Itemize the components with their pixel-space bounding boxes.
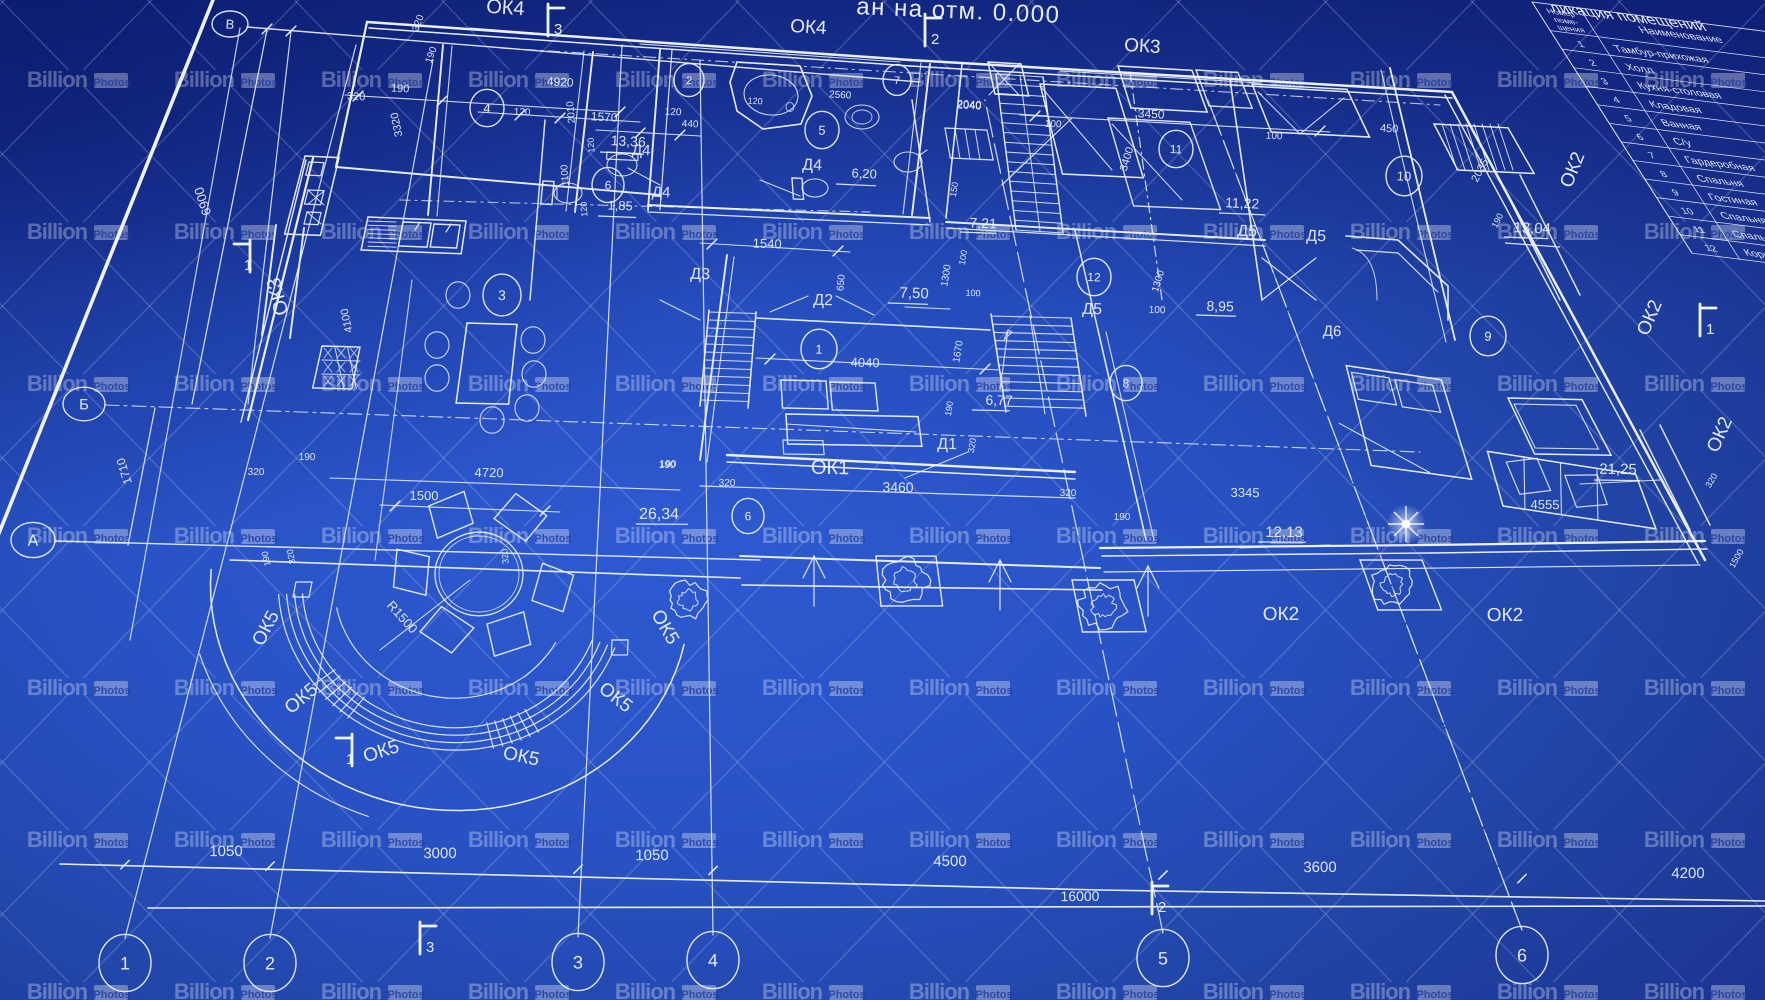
svg-text:Photos: Photos [1416,77,1453,89]
svg-text:Photos: Photos [93,229,130,241]
svg-text:Billion: Billion [468,371,529,396]
svg-text:Photos: Photos [534,533,571,545]
svg-text:Billion: Billion [468,219,529,244]
svg-text:Photos: Photos [1710,989,1747,1000]
svg-text:1: 1 [815,342,823,357]
svg-text:2: 2 [265,953,275,973]
svg-text:Billion: Billion [174,979,235,1000]
svg-text:Billion: Billion [27,979,88,1000]
svg-text:5: 5 [1158,948,1168,968]
svg-text:Billion: Billion [615,979,676,1000]
svg-text:7: 7 [894,75,901,87]
svg-text:Photos: Photos [681,989,718,1000]
svg-text:6,77: 6,77 [985,392,1013,409]
svg-text:Photos: Photos [1563,837,1600,849]
svg-text:Photos: Photos [387,381,424,393]
svg-text:Billion: Billion [615,219,676,244]
svg-text:12: 12 [1087,270,1101,284]
svg-text:Photos: Photos [828,77,865,89]
svg-text:Photos: Photos [93,685,130,697]
svg-text:Photos: Photos [93,837,130,849]
svg-text:Photos: Photos [1416,381,1453,393]
svg-text:8,95: 8,95 [1206,298,1234,315]
svg-text:Billion: Billion [27,675,88,700]
svg-text:Billion: Billion [1644,827,1705,852]
svg-text:3000: 3000 [423,845,456,862]
svg-text:100: 100 [965,288,980,298]
svg-text:Д4: Д4 [652,184,671,202]
svg-text:Photos: Photos [1269,837,1306,849]
svg-text:Billion: Billion [1056,523,1117,548]
svg-text:2010: 2010 [565,100,578,123]
svg-text:Д3: Д3 [690,266,710,284]
svg-text:3: 3 [554,21,562,38]
svg-text:В: В [225,16,235,32]
svg-text:Photos: Photos [1269,685,1306,697]
svg-text:Billion: Billion [321,523,382,548]
svg-text:Billion: Billion [321,827,382,852]
svg-text:1: 1 [1706,321,1714,338]
svg-text:120: 120 [747,96,763,107]
svg-text:16000: 16000 [1060,888,1099,904]
svg-text:100: 100 [1266,131,1284,143]
svg-text:Photos: Photos [1122,989,1159,1000]
svg-text:11,22: 11,22 [1225,194,1260,211]
svg-text:ОК2: ОК2 [1263,604,1299,625]
svg-text:4920: 4920 [547,74,575,89]
svg-text:Billion: Billion [762,675,823,700]
svg-text:4720: 4720 [475,465,504,480]
svg-text:Billion: Billion [1644,371,1705,396]
svg-text:Photos: Photos [93,77,130,89]
svg-text:Photos: Photos [1563,685,1600,697]
svg-text:190: 190 [299,452,316,463]
svg-text:2: 2 [686,75,693,87]
svg-text:120: 120 [665,107,683,119]
svg-text:Billion: Billion [468,67,529,92]
svg-text:ОК2: ОК2 [1487,605,1523,626]
svg-text:2: 2 [1158,899,1166,916]
svg-text:ОК1: ОК1 [811,457,850,479]
svg-text:Photos: Photos [1416,685,1453,697]
svg-text:Photos: Photos [828,229,865,241]
svg-text:Photos: Photos [534,229,571,241]
svg-text:3: 3 [426,939,434,956]
svg-text:Photos: Photos [534,685,571,697]
svg-text:Photos: Photos [1563,229,1600,241]
svg-text:Photos: Photos [681,229,718,241]
svg-text:Photos: Photos [534,837,571,849]
svg-text:Billion: Billion [27,219,88,244]
svg-text:190: 190 [391,83,410,96]
svg-text:Billion: Billion [27,827,88,852]
svg-text:Billion: Billion [615,523,676,548]
svg-text:Photos: Photos [387,229,424,241]
svg-text:Billion: Billion [1203,979,1264,1000]
svg-text:Photos: Photos [387,533,424,545]
svg-text:Photos: Photos [975,989,1012,1000]
svg-text:Photos: Photos [1269,989,1306,1000]
svg-text:Photos: Photos [828,533,865,545]
svg-text:3450: 3450 [1138,106,1166,121]
svg-text:120: 120 [586,137,597,153]
svg-text:4555: 4555 [1531,497,1560,512]
svg-text:3345: 3345 [1231,485,1260,500]
svg-text:10: 10 [1396,168,1411,184]
svg-text:4500: 4500 [933,853,966,870]
svg-text:4200: 4200 [1671,865,1704,882]
svg-text:320: 320 [248,467,265,478]
svg-text:Photos: Photos [681,381,718,393]
svg-text:100: 100 [1149,305,1166,317]
svg-text:Photos: Photos [828,837,865,849]
svg-text:440: 440 [682,119,700,131]
svg-text:Billion: Billion [1203,523,1264,548]
svg-text:Billion: Billion [174,675,235,700]
svg-text:Billion: Billion [27,67,88,92]
svg-text:Photos: Photos [534,381,571,393]
svg-text:Photos: Photos [93,989,130,1000]
svg-text:320: 320 [719,478,736,489]
svg-text:Billion: Billion [762,371,823,396]
svg-text:1050: 1050 [209,843,242,860]
svg-text:Photos: Photos [1122,837,1159,849]
svg-text:Billion: Billion [615,67,676,92]
svg-text:Д6: Д6 [1323,323,1342,341]
svg-text:Photos: Photos [1710,837,1747,849]
svg-text:Photos: Photos [681,685,718,697]
svg-text:1: 1 [346,751,354,768]
svg-text:Photos: Photos [975,837,1012,849]
svg-text:Photos: Photos [1710,685,1747,697]
svg-text:Billion: Billion [321,219,382,244]
svg-text:Д4: Д4 [802,157,823,175]
svg-text:Photos: Photos [1710,381,1747,393]
svg-text:Billion: Billion [468,523,529,548]
svg-text:7,21: 7,21 [969,214,997,231]
svg-text:13,04: 13,04 [1513,219,1551,237]
svg-text:Photos: Photos [975,533,1012,545]
svg-text:Photos: Photos [1416,837,1453,849]
svg-text:Billion: Billion [762,827,823,852]
svg-text:Billion: Billion [468,979,529,1000]
svg-text:Д4: Д4 [632,142,651,160]
svg-text:Billion: Billion [1497,675,1558,700]
svg-text:Photos: Photos [240,837,277,849]
svg-text:Photos: Photos [975,685,1012,697]
svg-text:4: 4 [708,950,718,970]
svg-text:4: 4 [483,101,491,116]
svg-text:Photos: Photos [1563,989,1600,1000]
svg-text:650: 650 [835,273,848,291]
svg-text:Billion: Billion [1497,827,1558,852]
svg-text:Photos: Photos [681,837,718,849]
svg-text:Billion: Billion [321,67,382,92]
svg-text:3: 3 [498,287,507,303]
svg-text:Photos: Photos [240,685,277,697]
svg-text:3: 3 [573,952,583,972]
svg-text:Photos: Photos [240,381,277,393]
svg-text:7,50: 7,50 [899,285,929,303]
svg-text:2: 2 [931,31,939,48]
svg-text:1: 1 [120,953,130,973]
svg-text:1,85: 1,85 [607,197,633,213]
svg-text:1100: 1100 [559,164,572,187]
svg-text:Д5: Д5 [1082,301,1102,319]
svg-text:Photos: Photos [240,77,277,89]
svg-text:Billion: Billion [1350,827,1411,852]
svg-text:Photos: Photos [681,533,718,545]
svg-text:Billion: Billion [1350,675,1411,700]
svg-text:Photos: Photos [1710,533,1747,545]
svg-text:ОК3: ОК3 [1124,35,1162,58]
svg-text:Д1: Д1 [937,436,957,453]
svg-text:Д5: Д5 [1306,228,1326,246]
svg-text:Photos: Photos [240,533,277,545]
svg-text:Billion: Billion [1056,979,1117,1000]
svg-text:Billion: Billion [1203,827,1264,852]
svg-text:Billion: Billion [1350,371,1411,396]
svg-text:Billion: Billion [909,827,970,852]
svg-text:Б: Б [79,396,89,413]
svg-text:Billion: Billion [1203,371,1264,396]
svg-text:Photos: Photos [1416,989,1453,1000]
svg-text:Billion: Billion [1497,371,1558,396]
svg-text:Billion: Billion [1350,219,1411,244]
svg-text:Photos: Photos [387,837,424,849]
svg-text:5: 5 [818,123,826,138]
svg-text:Photos: Photos [1122,685,1159,697]
svg-text:Photos: Photos [240,989,277,1000]
svg-text:Billion: Billion [174,371,235,396]
svg-text:Photos: Photos [1269,381,1306,393]
svg-text:Billion: Billion [1203,675,1264,700]
svg-text:Billion: Billion [468,827,529,852]
svg-text:Billion: Billion [1350,979,1411,1000]
svg-text:320: 320 [1060,488,1077,499]
svg-text:6,20: 6,20 [851,165,877,181]
svg-text:3600: 3600 [1303,859,1336,876]
svg-text:2560: 2560 [829,89,852,101]
svg-text:Billion: Billion [615,371,676,396]
svg-text:Billion: Billion [174,219,235,244]
svg-text:Billion: Billion [762,979,823,1000]
svg-text:А: А [28,533,39,550]
svg-text:450: 450 [1380,123,1399,136]
svg-text:11: 11 [1169,142,1182,157]
svg-text:190: 190 [660,459,677,470]
svg-text:190: 190 [1114,512,1131,523]
svg-text:2040: 2040 [957,99,982,112]
svg-text:Д2: Д2 [813,292,833,310]
svg-text:1540: 1540 [752,235,781,251]
svg-text:Billion: Billion [321,979,382,1000]
svg-text:Billion: Billion [1056,827,1117,852]
svg-text:26,34: 26,34 [639,506,679,523]
svg-text:Photos: Photos [1563,381,1600,393]
svg-text:12,13: 12,13 [1265,524,1303,541]
svg-text:Billion: Billion [1644,675,1705,700]
svg-text:Billion: Billion [909,675,970,700]
svg-text:ОК4: ОК4 [790,16,828,39]
svg-text:Billion: Billion [909,371,970,396]
svg-text:320: 320 [499,548,510,564]
svg-text:6: 6 [1517,945,1527,965]
svg-text:Billion: Billion [1497,979,1558,1000]
svg-text:1500: 1500 [410,488,439,503]
svg-text:Billion: Billion [1497,67,1558,92]
svg-text:Photos: Photos [828,989,865,1000]
svg-text:6: 6 [604,178,612,192]
svg-text:Billion: Billion [909,979,970,1000]
svg-text:Photos: Photos [387,685,424,697]
svg-text:9: 9 [1484,329,1492,344]
svg-text:1050: 1050 [635,847,668,864]
svg-text:Billion: Billion [762,523,823,548]
svg-text:8: 8 [1122,376,1129,390]
svg-text:100: 100 [1045,119,1063,131]
svg-text:6: 6 [745,509,752,523]
svg-text:Photos: Photos [240,229,277,241]
svg-text:ОК4: ОК4 [486,0,526,20]
svg-text:1: 1 [244,257,252,274]
svg-text:Photos: Photos [1269,229,1306,241]
svg-text:Photos: Photos [93,381,130,393]
svg-text:Photos: Photos [534,989,571,1000]
svg-text:Photos: Photos [387,989,424,1000]
svg-text:Billion: Billion [909,523,970,548]
svg-text:Billion: Billion [1644,979,1705,1000]
svg-text:120: 120 [579,201,590,217]
svg-text:Billion: Billion [762,67,823,92]
svg-text:Photos: Photos [828,685,865,697]
svg-text:Д5: Д5 [1237,223,1257,241]
svg-text:Billion: Billion [1056,675,1117,700]
